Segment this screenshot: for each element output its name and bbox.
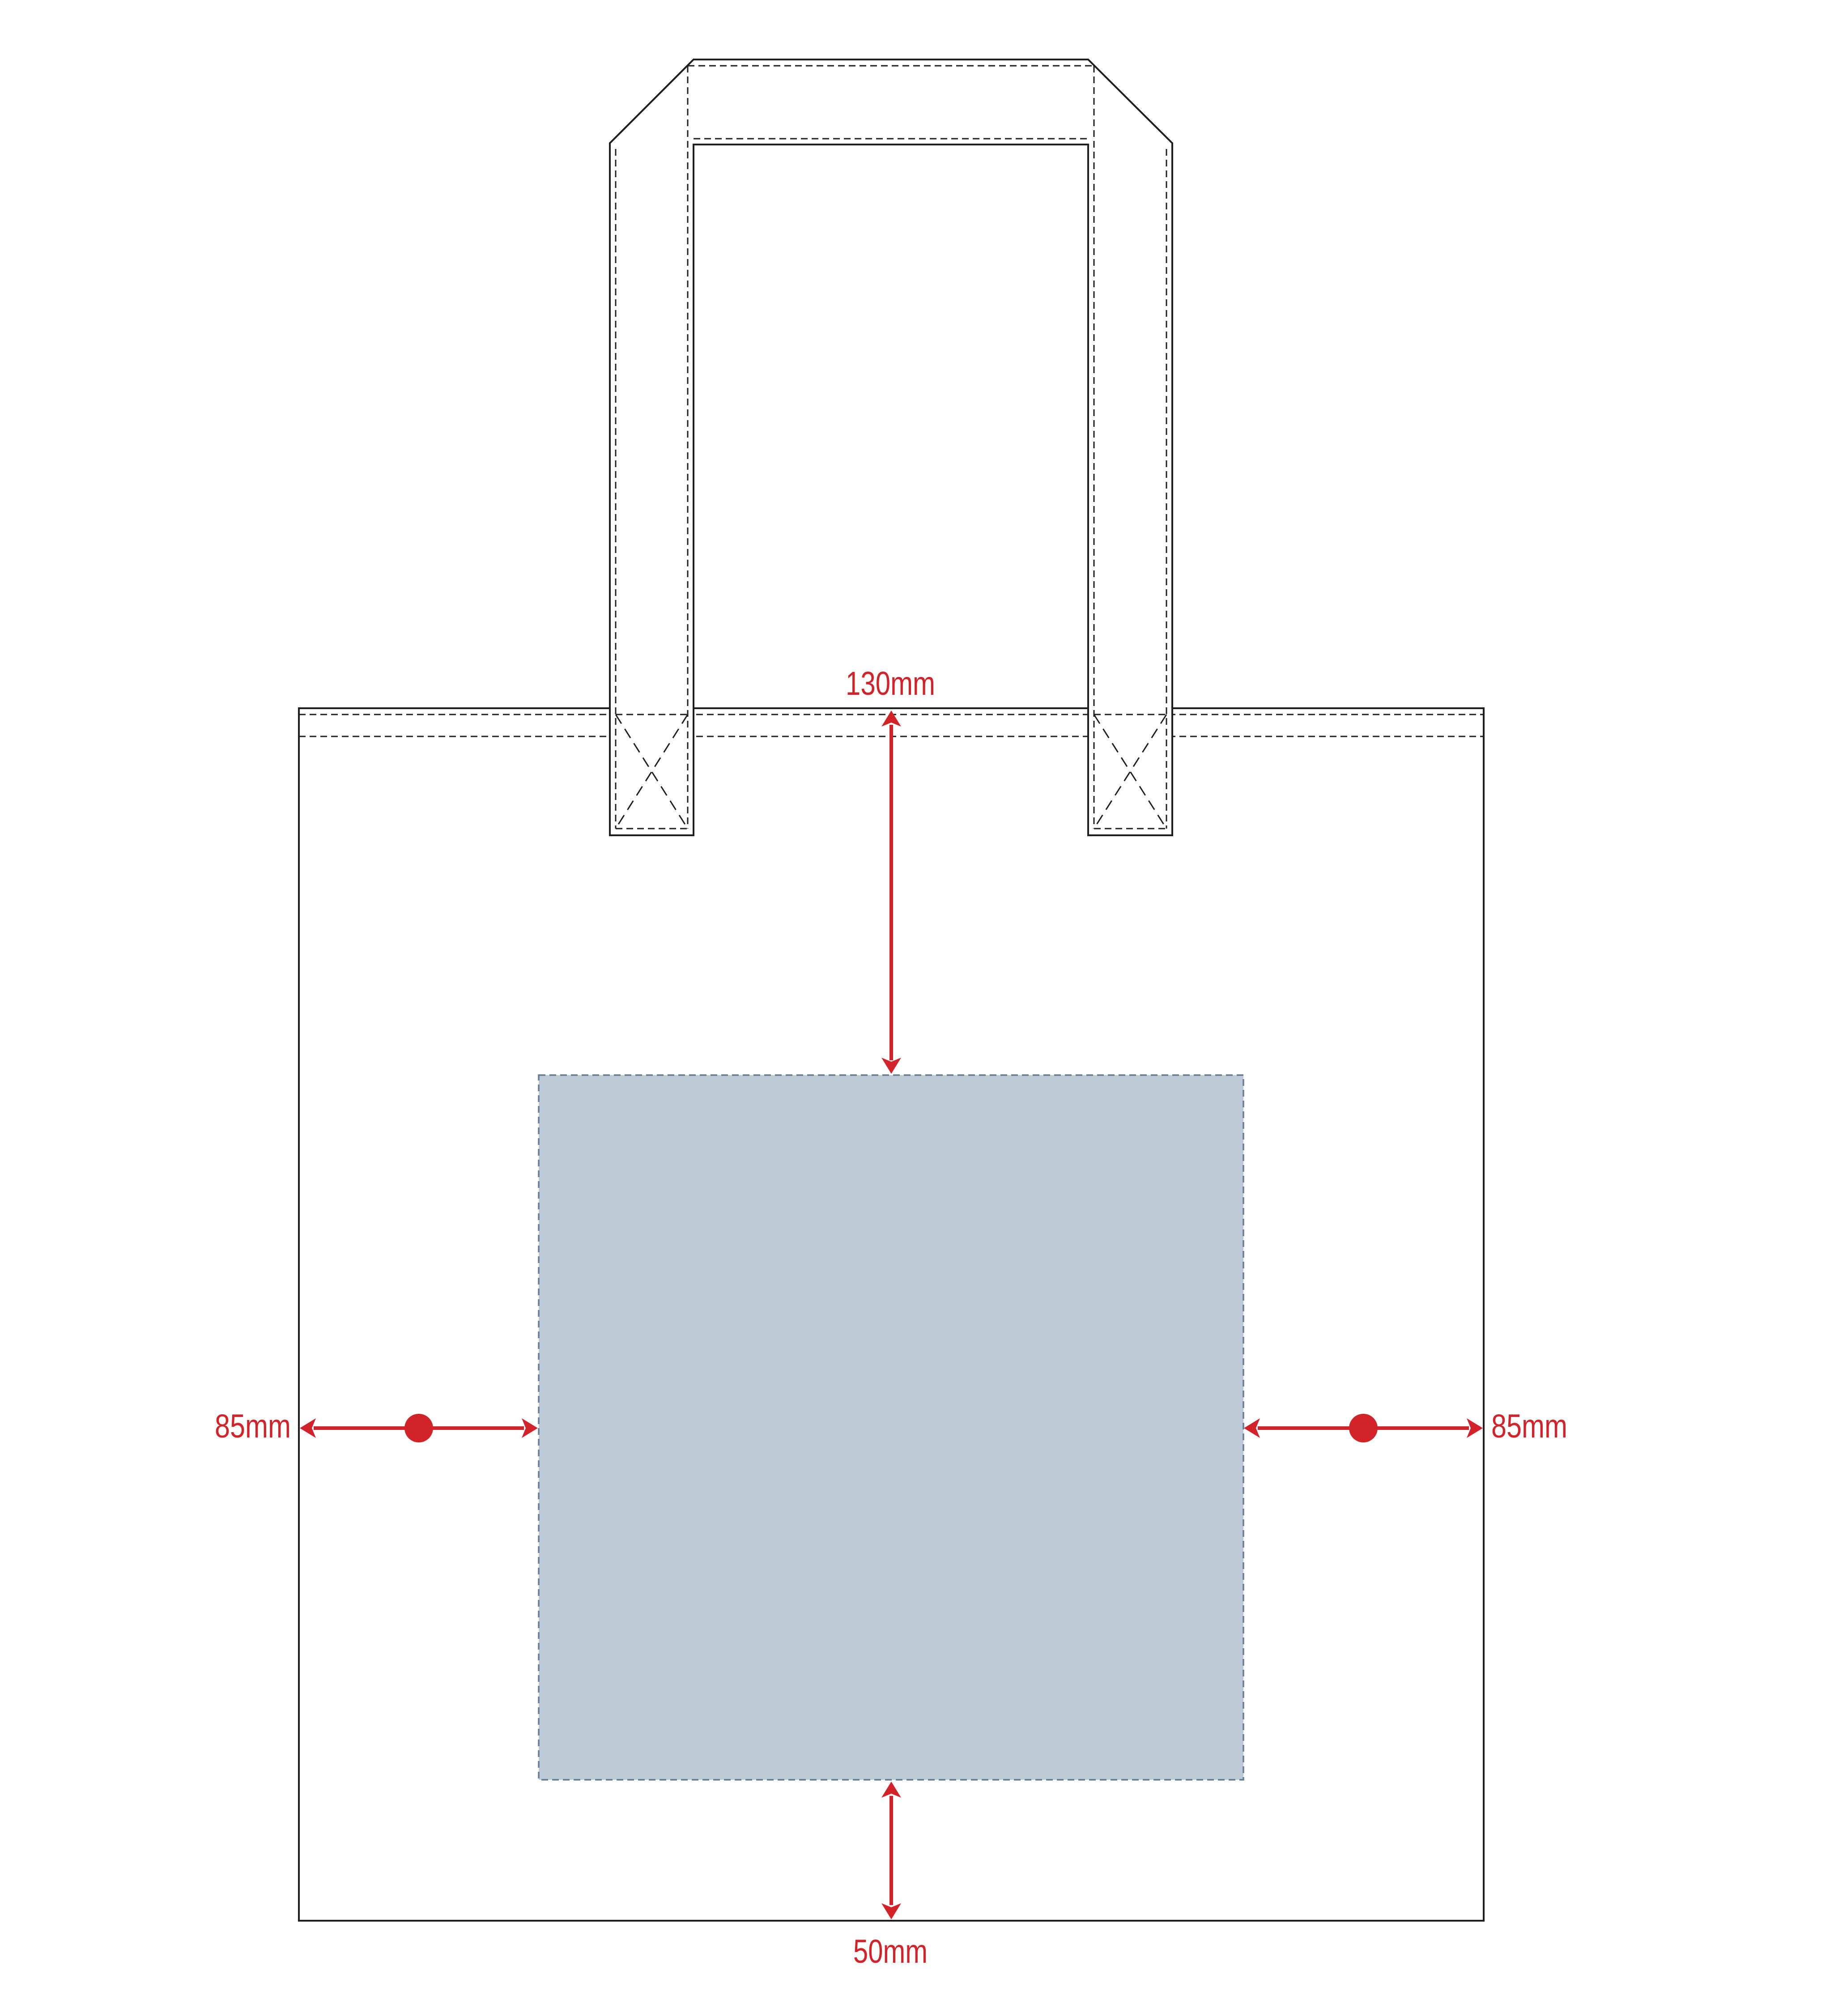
print-area	[539, 1075, 1243, 1780]
bottom-offset-label: 50mm	[853, 1933, 928, 1970]
right-offset-label: 85mm	[1491, 1408, 1567, 1445]
left-offset-midpoint-dot	[404, 1414, 433, 1442]
right-offset-midpoint-dot	[1349, 1414, 1378, 1442]
tote-bag-print-area-diagram: 130mm 85mm 85mm 50mm	[0, 0, 1830, 2016]
top-offset-label: 130mm	[846, 665, 935, 702]
left-offset-label: 85mm	[215, 1408, 291, 1445]
